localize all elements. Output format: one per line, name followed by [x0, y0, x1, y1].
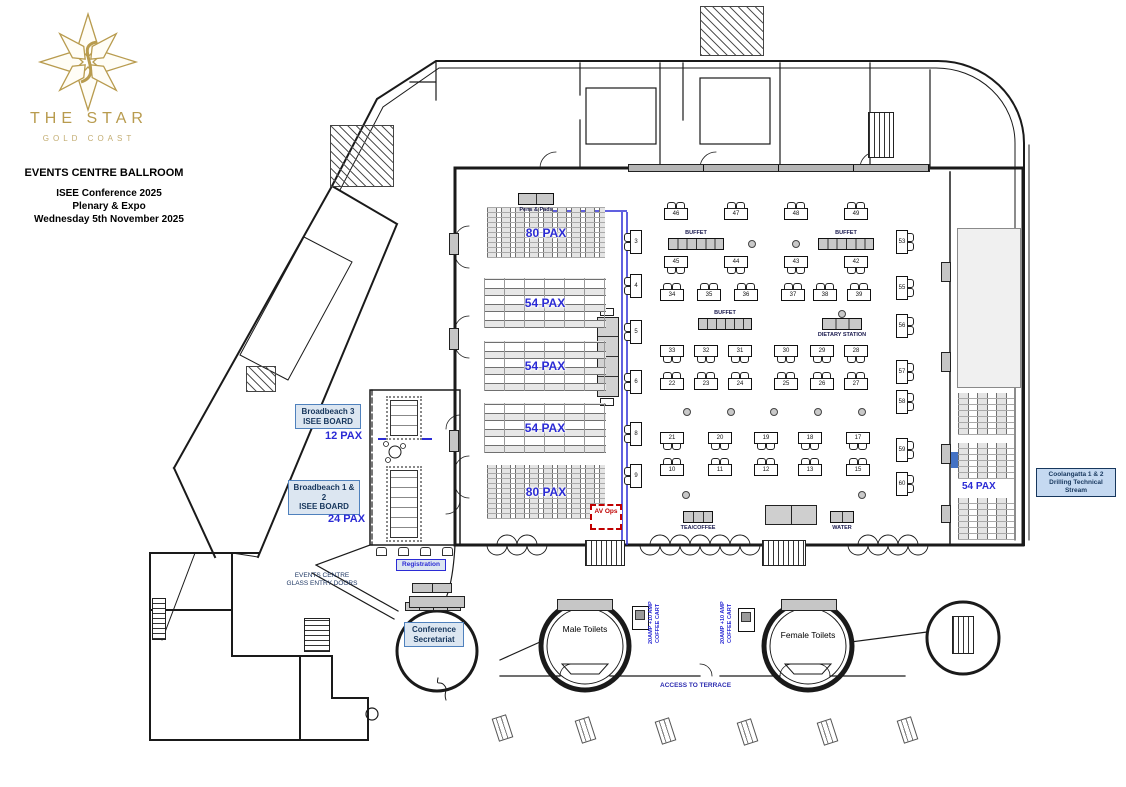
chair-icon	[711, 443, 720, 450]
room-use: ISEE BOARD	[303, 417, 353, 426]
registration-counter	[412, 583, 452, 593]
column-dot	[727, 408, 735, 416]
chair-icon	[672, 443, 681, 450]
expo-table: 47	[724, 208, 748, 220]
expo-table-number: 33	[669, 348, 676, 354]
entry-line2: GLASS ENTRY DOORS	[287, 580, 358, 587]
chair-icon	[737, 283, 746, 290]
expo-table-number: 28	[853, 348, 860, 354]
entry-line1: EVENTS CENTRE	[295, 572, 350, 579]
catering-station-label: Pens & Pads	[519, 207, 552, 213]
pax-label: 54 PAX	[525, 421, 565, 435]
expo-table-number: 32	[703, 348, 710, 354]
expo-table-number: 29	[819, 348, 826, 354]
chair-icon	[858, 458, 867, 465]
expo-table: 46	[664, 208, 688, 220]
expo-table: 24	[728, 378, 752, 390]
expo-table: 36	[734, 289, 758, 301]
chair-icon	[822, 372, 831, 379]
expo-table: 29	[810, 345, 834, 357]
chair-icon	[847, 267, 856, 274]
chair-icon	[672, 372, 681, 379]
column-dot	[858, 408, 866, 416]
catering-station	[822, 318, 862, 330]
chair-icon	[787, 267, 796, 274]
chair-icon	[796, 202, 805, 209]
chair-icon	[907, 402, 914, 411]
expo-table: 60	[896, 472, 908, 496]
coffee-cart-power-label: 20AMP +10 AMP COFFEE CART	[720, 592, 734, 654]
chair-icon	[907, 233, 914, 242]
expo-table: 30	[774, 345, 798, 357]
expo-table: 20	[708, 432, 732, 444]
catering-station-label: BUFFET	[835, 230, 857, 236]
chair-icon	[907, 242, 914, 251]
expo-table: 59	[896, 438, 908, 462]
coffee-cart	[632, 606, 649, 630]
expo-table-number: 20	[717, 435, 724, 441]
expo-table: 11	[708, 464, 732, 476]
female-toilets-label: Female Toilets	[777, 630, 839, 640]
coffee-line2: COFFEE CART	[727, 603, 733, 642]
catering-station	[518, 193, 554, 205]
chair-icon	[672, 283, 681, 290]
chair-icon	[907, 326, 914, 335]
expo-table: 43	[784, 256, 808, 268]
expo-table: 42	[844, 256, 868, 268]
expo-table-number: 4	[634, 283, 637, 289]
chair-icon	[624, 467, 631, 476]
catering-station-label: DIETARY STATION	[818, 332, 866, 338]
chair-icon	[624, 476, 631, 485]
chair-icon	[816, 283, 825, 290]
pax-label-broadbeach-1-2: 24 PAX	[328, 513, 365, 525]
secretariat-line1: Conference	[412, 625, 456, 634]
coffee-line1: 20AMP +10 AMP	[720, 602, 726, 645]
chair-icon	[663, 458, 672, 465]
chair-icon	[813, 356, 822, 363]
expo-table-number: 55	[899, 285, 906, 291]
expo-table-number: 36	[743, 292, 750, 298]
expo-table-number: 45	[673, 259, 680, 265]
chair-icon	[907, 372, 914, 381]
coffee-cart-power-label: 20AMP +10 AMP COFFEE CART	[648, 592, 662, 654]
catering-station	[818, 238, 874, 250]
room-name: Broadbeach 3	[302, 407, 355, 416]
expo-table: 19	[754, 432, 778, 444]
registration-chair	[376, 547, 387, 556]
expo-table-number: 3	[634, 239, 637, 245]
column-dot	[682, 491, 690, 499]
door-panel	[941, 262, 951, 282]
chair-icon	[784, 283, 793, 290]
page-title: EVENTS CENTRE BALLROOM	[14, 167, 194, 179]
chair-icon	[847, 202, 856, 209]
chair-icon	[624, 286, 631, 295]
chair-icon	[810, 443, 819, 450]
expo-table: 4	[630, 274, 642, 298]
expo-table: 10	[660, 464, 684, 476]
room-label-broadbeach-3: Broadbeach 3 ISEE BOARD	[295, 404, 361, 429]
chair-icon	[907, 363, 914, 372]
expo-table: 53	[896, 230, 908, 254]
boardroom-table-24pax	[386, 466, 422, 542]
plenary-seat-block: 54 PAX	[484, 403, 606, 453]
door-panel	[941, 352, 951, 372]
chair-icon	[787, 202, 796, 209]
plenary-seat-block: 80 PAX	[487, 207, 605, 258]
room-use: Drilling Technical Stream	[1049, 479, 1103, 494]
expo-table-number: 58	[899, 399, 906, 405]
door-panel	[449, 430, 459, 452]
expo-table: 5	[630, 320, 642, 344]
chair-icon	[847, 372, 856, 379]
door-panel	[449, 328, 459, 350]
expo-table: 17	[846, 432, 870, 444]
chair-icon	[786, 372, 795, 379]
expo-table-number: 18	[807, 435, 814, 441]
chair-icon	[706, 372, 715, 379]
operable-wall-panel	[957, 228, 1021, 388]
access-terrace-label: ACCESS TO TERRACE	[660, 682, 731, 689]
expo-table: 48	[784, 208, 808, 220]
expo-table: 35	[697, 289, 721, 301]
expo-table-number: 12	[763, 467, 770, 473]
expo-table-number: 19	[763, 435, 770, 441]
expo-table: 6	[630, 370, 642, 394]
chair-icon	[859, 283, 868, 290]
plenary-seat-block: 80 PAX	[487, 465, 605, 519]
chair-icon	[907, 441, 914, 450]
chair-icon	[720, 443, 729, 450]
expo-table-number: 30	[783, 348, 790, 354]
expo-table-number: 25	[783, 381, 790, 387]
stairs	[152, 598, 166, 640]
expo-table-number: 44	[733, 259, 740, 265]
expo-table-number: 9	[634, 473, 637, 479]
chair-icon	[813, 372, 822, 379]
chair-icon	[907, 475, 914, 484]
chair-icon	[624, 373, 631, 382]
stairs	[304, 618, 330, 652]
expo-table-number: 31	[737, 348, 744, 354]
expo-table-number: 38	[822, 292, 829, 298]
registration-chair	[420, 547, 431, 556]
chair-icon	[907, 484, 914, 493]
pax-label: 54 PAX	[525, 296, 565, 310]
chair-icon	[746, 283, 755, 290]
catering-station-label: TEA/COFFEE	[681, 525, 716, 531]
expo-table-number: 24	[737, 381, 744, 387]
expo-table-number: 57	[899, 369, 906, 375]
column-dot	[792, 240, 800, 248]
expo-table-number: 13	[807, 467, 814, 473]
chair-icon	[907, 317, 914, 326]
expo-table-number: 53	[899, 239, 906, 245]
expo-table: 9	[630, 464, 642, 488]
expo-table-number: 47	[733, 211, 740, 217]
chair-icon	[676, 202, 685, 209]
coolangatta-seat-block	[958, 443, 1014, 479]
chair-icon	[740, 372, 749, 379]
expo-table-number: 27	[853, 381, 860, 387]
chair-icon	[856, 356, 865, 363]
event-date: Wednesday 5th November 2025	[14, 214, 204, 225]
coffee-line2: COFFEE CART	[655, 603, 661, 642]
expo-table: 15	[846, 464, 870, 476]
expo-table: 56	[896, 314, 908, 338]
expo-table-number: 39	[856, 292, 863, 298]
chair-icon	[850, 283, 859, 290]
chair-icon	[663, 443, 672, 450]
catering-station	[683, 511, 713, 523]
av-ops-label: AV Ops	[595, 508, 618, 515]
chair-icon	[672, 356, 681, 363]
expo-table: 8	[630, 422, 642, 446]
expo-table: 12	[754, 464, 778, 476]
coolangatta-seat-block	[958, 393, 1014, 435]
room-label-broadbeach-1-2: Broadbeach 1 & 2 ISEE BOARD	[288, 480, 360, 515]
expo-table: 25	[774, 378, 798, 390]
chair-icon	[847, 356, 856, 363]
expo-table-number: 48	[793, 211, 800, 217]
chair-icon	[711, 458, 720, 465]
chair-icon	[624, 382, 631, 391]
expo-table: 37	[781, 289, 805, 301]
chair-icon	[663, 283, 672, 290]
chair-icon	[796, 267, 805, 274]
chair-icon	[766, 458, 775, 465]
door-panel	[941, 505, 951, 523]
catering-station	[830, 511, 854, 523]
pax-label: 54 PAX	[525, 359, 565, 373]
expo-table-number: 46	[673, 211, 680, 217]
catering-station	[668, 238, 724, 250]
expo-table-number: 37	[790, 292, 797, 298]
expo-table-number: 15	[855, 467, 862, 473]
chair-icon	[663, 372, 672, 379]
room-use: ISEE BOARD	[299, 502, 349, 511]
floor-plan: THE STAR GOLD COAST EVENTS CENTRE BALLRO…	[0, 0, 1126, 787]
conference-secretariat-label: Conference Secretariat	[404, 622, 464, 647]
expo-table-number: 60	[899, 481, 906, 487]
chair-icon	[700, 283, 709, 290]
coffee-cart	[738, 608, 755, 632]
registration-chair	[442, 547, 453, 556]
brand-name: THE STAR	[16, 110, 162, 128]
chair-icon	[706, 356, 715, 363]
expo-table: 45	[664, 256, 688, 268]
male-toilets-counter	[557, 599, 613, 611]
chair-icon	[676, 267, 685, 274]
chair-icon	[624, 425, 631, 434]
stairs	[952, 616, 974, 654]
boardroom-table-12pax	[386, 396, 422, 440]
chair-icon	[786, 356, 795, 363]
chair-icon	[667, 202, 676, 209]
catering-station	[698, 318, 752, 330]
chair-icon	[736, 267, 745, 274]
expo-table: 18	[798, 432, 822, 444]
room-name: Broadbeach 1 & 2	[294, 483, 355, 502]
chair-icon	[697, 356, 706, 363]
pax-label: 80 PAX	[526, 226, 566, 240]
column-dot	[683, 408, 691, 416]
registration-label: Registration	[396, 559, 446, 571]
room-label-coolangatta: Coolangatta 1 & 2 Drilling Technical Str…	[1036, 468, 1116, 497]
chair-icon	[663, 356, 672, 363]
chair-icon	[757, 443, 766, 450]
column-dot	[858, 491, 866, 499]
expo-table-number: 59	[899, 447, 906, 453]
chair-icon	[849, 458, 858, 465]
expo-table-number: 43	[793, 259, 800, 265]
coolangatta-seat-block	[958, 498, 1014, 540]
secretariat-line2: Secretariat	[413, 635, 454, 644]
av-ops-box: AV Ops	[590, 504, 622, 530]
column-dot	[838, 310, 846, 318]
room-name: Coolangatta 1 & 2	[1049, 471, 1104, 478]
chair-icon	[907, 393, 914, 402]
chair-icon	[731, 356, 740, 363]
plenary-seat-block: 54 PAX	[484, 341, 606, 391]
chair-icon	[766, 443, 775, 450]
expo-table: 23	[694, 378, 718, 390]
chair-icon	[740, 356, 749, 363]
plenary-seat-block: 54 PAX	[484, 278, 606, 328]
expo-table-number: 23	[703, 381, 710, 387]
event-session: Plenary & Expo	[14, 201, 204, 212]
expo-table-number: 26	[819, 381, 826, 387]
expo-table-number: 6	[634, 379, 637, 385]
stairs	[762, 540, 806, 566]
chair-icon	[709, 283, 718, 290]
expo-table-number: 5	[634, 329, 637, 335]
chair-icon	[624, 332, 631, 341]
chair-icon	[801, 458, 810, 465]
chair-icon	[825, 283, 834, 290]
entry-stairs	[330, 125, 394, 187]
expo-table-number: 35	[706, 292, 713, 298]
expo-table: 3	[630, 230, 642, 254]
catering-station-label: WATER	[832, 525, 851, 531]
event-name: ISEE Conference 2025	[14, 188, 204, 199]
chair-icon	[849, 443, 858, 450]
chair-icon	[856, 202, 865, 209]
registration-chair	[398, 547, 409, 556]
expo-table: 26	[810, 378, 834, 390]
expo-table-number: 21	[669, 435, 676, 441]
expo-table-number: 34	[669, 292, 676, 298]
chair-icon	[793, 283, 802, 290]
secretariat-counter	[409, 596, 465, 608]
chair-icon	[727, 202, 736, 209]
expo-table: 28	[844, 345, 868, 357]
expo-table: 33	[660, 345, 684, 357]
expo-table: 32	[694, 345, 718, 357]
chair-icon	[720, 458, 729, 465]
chair-icon	[777, 356, 786, 363]
expo-table: 57	[896, 360, 908, 384]
chair-icon	[822, 356, 831, 363]
expo-table-number: 56	[899, 323, 906, 329]
chair-icon	[624, 323, 631, 332]
expo-table: 22	[660, 378, 684, 390]
chair-icon	[697, 372, 706, 379]
chair-icon	[736, 202, 745, 209]
expo-table: 55	[896, 276, 908, 300]
glass-entry-doors-label: EVENTS CENTRE GLASS ENTRY DOORS	[272, 572, 372, 588]
chair-icon	[667, 267, 676, 274]
pax-label-coolangatta: 54 PAX	[962, 481, 996, 492]
coffee-line1: 20AMP +10 AMP	[648, 602, 654, 645]
stairs	[868, 112, 894, 158]
chair-icon	[757, 458, 766, 465]
chair-icon	[801, 443, 810, 450]
expo-table: 44	[724, 256, 748, 268]
chair-icon	[907, 450, 914, 459]
column-dot	[748, 240, 756, 248]
expo-table: 31	[728, 345, 752, 357]
catering-station-label: BUFFET	[714, 310, 736, 316]
door-panel	[941, 444, 951, 464]
expo-table: 27	[844, 378, 868, 390]
chair-icon	[624, 233, 631, 242]
chair-icon	[727, 267, 736, 274]
expo-table-number: 49	[853, 211, 860, 217]
male-toilets-label: Male Toilets	[556, 624, 614, 634]
door-panel	[449, 233, 459, 255]
chair-icon	[624, 242, 631, 251]
pax-label: 80 PAX	[526, 485, 566, 499]
expo-table-number: 8	[634, 431, 637, 437]
pax-label-broadbeach-3: 12 PAX	[325, 430, 362, 442]
hatched-wall	[700, 6, 764, 56]
star-logo	[31, 5, 144, 118]
column-dot	[770, 408, 778, 416]
chair-icon	[731, 372, 740, 379]
expo-table-number: 11	[717, 467, 723, 473]
expo-table-number: 17	[855, 435, 862, 441]
expo-table: 39	[847, 289, 871, 301]
expo-table: 13	[798, 464, 822, 476]
top-wall-counter	[628, 164, 930, 172]
chair-icon	[777, 372, 786, 379]
chair-icon	[856, 267, 865, 274]
stair-hatch	[246, 366, 276, 392]
chair-icon	[858, 443, 867, 450]
column-dot	[814, 408, 822, 416]
expo-table: 34	[660, 289, 684, 301]
stairs	[585, 540, 625, 566]
expo-table-number: 10	[669, 467, 676, 473]
expo-table: 58	[896, 390, 908, 414]
expo-table: 49	[844, 208, 868, 220]
expo-table-number: 22	[669, 381, 676, 387]
expo-table: 21	[660, 432, 684, 444]
chair-icon	[810, 458, 819, 465]
expo-table: 38	[813, 289, 837, 301]
catering-station-label: BUFFET	[685, 230, 707, 236]
chair-icon	[856, 372, 865, 379]
chair-icon	[907, 279, 914, 288]
chair-icon	[624, 277, 631, 286]
chair-icon	[624, 434, 631, 443]
female-toilets-counter	[781, 599, 837, 611]
expo-table-number: 42	[853, 259, 860, 265]
chair-icon	[907, 288, 914, 297]
brand-subtitle: GOLD COAST	[16, 134, 162, 143]
